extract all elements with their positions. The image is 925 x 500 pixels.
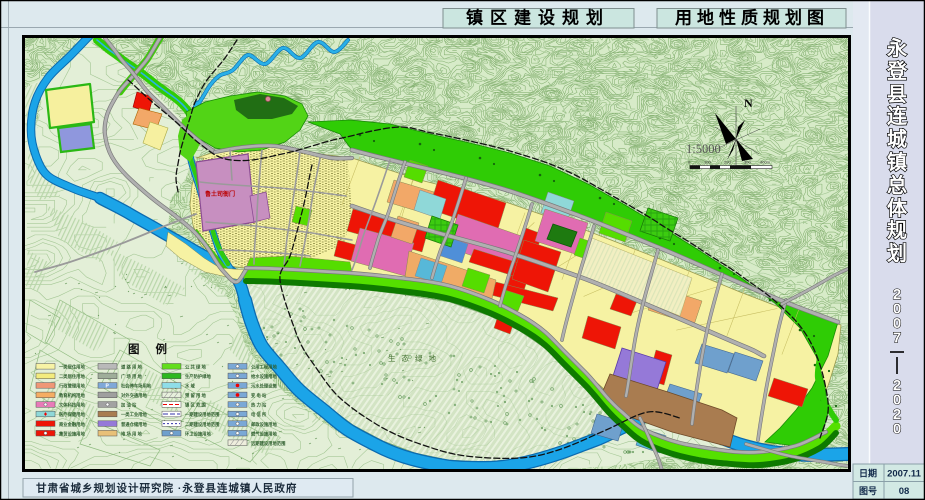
svg-text:日期: 日期 [859,468,877,479]
svg-text:体: 体 [887,196,908,220]
svg-text:道 路 用 地: 道 路 用 地 [121,364,142,371]
svg-text:集贸设施用地: 集贸设施用地 [58,430,85,437]
svg-text:医疗保健用地: 医疗保健用地 [59,411,85,418]
svg-text:1:5000: 1:5000 [686,142,721,156]
svg-text:堆 场 用 地: 堆 场 用 地 [121,430,142,437]
svg-text:公 共 绿 地: 公 共 绿 地 [185,364,206,371]
svg-text:生产防护绿地: 生产防护绿地 [185,373,211,380]
svg-text:二期建设用地范围: 二期建设用地范围 [185,421,220,428]
svg-text:一类工业用地: 一类工业用地 [121,411,147,418]
svg-text:社会停车场用地: 社会停车场用地 [120,383,152,390]
svg-text:鲁土司衙门: 鲁土司衙门 [205,190,235,198]
svg-text:邮政设施用地: 邮政设施用地 [251,421,277,428]
svg-text:2007.11: 2007.11 [887,469,922,480]
svg-text:公用工程用地: 公用工程用地 [251,364,277,371]
svg-text:燃气设施用地: 燃气设施用地 [251,430,277,437]
svg-text:08: 08 [899,486,910,497]
svg-text:400m: 400m [760,160,771,165]
svg-text:一类居住用地: 一类居住用地 [59,364,85,371]
svg-text:连: 连 [887,104,908,128]
svg-text:登: 登 [886,59,908,83]
svg-text:镇区建设规划: 镇区建设规划 [466,8,610,28]
svg-text:7: 7 [893,330,901,347]
svg-text:远期建设用地范围: 远期建设用地范围 [251,440,286,447]
svg-text:预 留 用 地: 预 留 用 地 [185,392,206,399]
svg-text:300: 300 [744,160,751,165]
svg-text:用地性质规划图: 用地性质规划图 [675,8,829,28]
svg-text:电 信 所: 电 信 所 [251,411,267,418]
svg-text:100: 100 [704,160,711,165]
svg-text:变 电 站: 变 电 站 [251,392,267,399]
svg-text:城: 城 [887,127,907,151]
svg-text:行政管理用地: 行政管理用地 [58,383,85,390]
svg-text:永: 永 [886,36,907,60]
svg-text:镇 区 范 围: 镇 区 范 围 [185,402,206,409]
svg-text:甘肃省城乡规划设计研究院 ·永登县连城镇人民政府: 甘肃省城乡规划设计研究院 ·永登县连城镇人民政府 [36,482,297,495]
svg-text:教育机构用地: 教育机构用地 [58,392,85,399]
svg-text:县: 县 [887,84,907,106]
svg-text:规: 规 [887,219,907,242]
svg-text:200: 200 [724,160,731,165]
svg-text:图例: 图例 [128,342,183,356]
svg-text:对外交通用地: 对外交通用地 [121,392,147,399]
svg-text:划: 划 [887,242,907,265]
svg-text:图号: 图号 [859,486,877,496]
svg-text:热 力 站: 热 力 站 [251,402,267,409]
svg-text:加 油 站: 加 油 站 [120,402,137,409]
svg-text:生态绿地: 生态绿地 [388,353,442,363]
svg-text:商业金融用地: 商业金融用地 [59,421,85,428]
svg-text:文体科技用地: 文体科技用地 [59,402,85,409]
svg-text:普通仓储用地: 普通仓储用地 [121,421,147,428]
svg-text:给水设施用地: 给水设施用地 [250,373,277,380]
svg-text:环卫设施用地: 环卫设施用地 [185,430,211,437]
svg-text:广 场 用 地: 广 场 用 地 [121,373,142,380]
svg-text:总: 总 [887,173,907,197]
svg-text:二类居住用地: 二类居住用地 [59,373,85,380]
svg-text:水 域: 水 域 [185,383,195,390]
svg-text:污水处理设施: 污水处理设施 [251,383,277,390]
svg-text:镇: 镇 [887,150,907,174]
svg-text:一期建设用地范围: 一期建设用地范围 [185,411,220,418]
svg-text:0: 0 [893,421,901,438]
svg-text:N: N [744,96,753,110]
